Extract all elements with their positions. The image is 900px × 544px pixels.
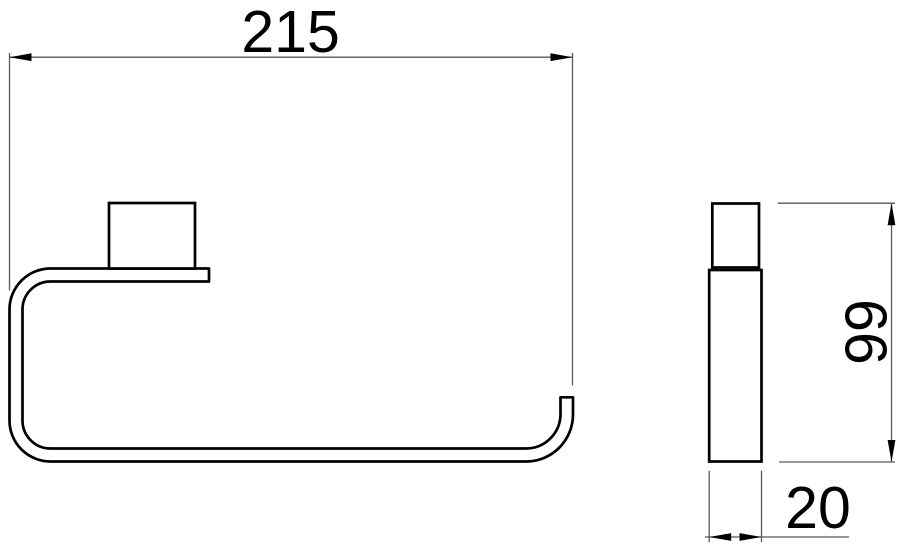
svg-text:215: 215: [241, 0, 339, 65]
svg-text:99: 99: [833, 299, 899, 365]
svg-text:20: 20: [785, 475, 851, 541]
